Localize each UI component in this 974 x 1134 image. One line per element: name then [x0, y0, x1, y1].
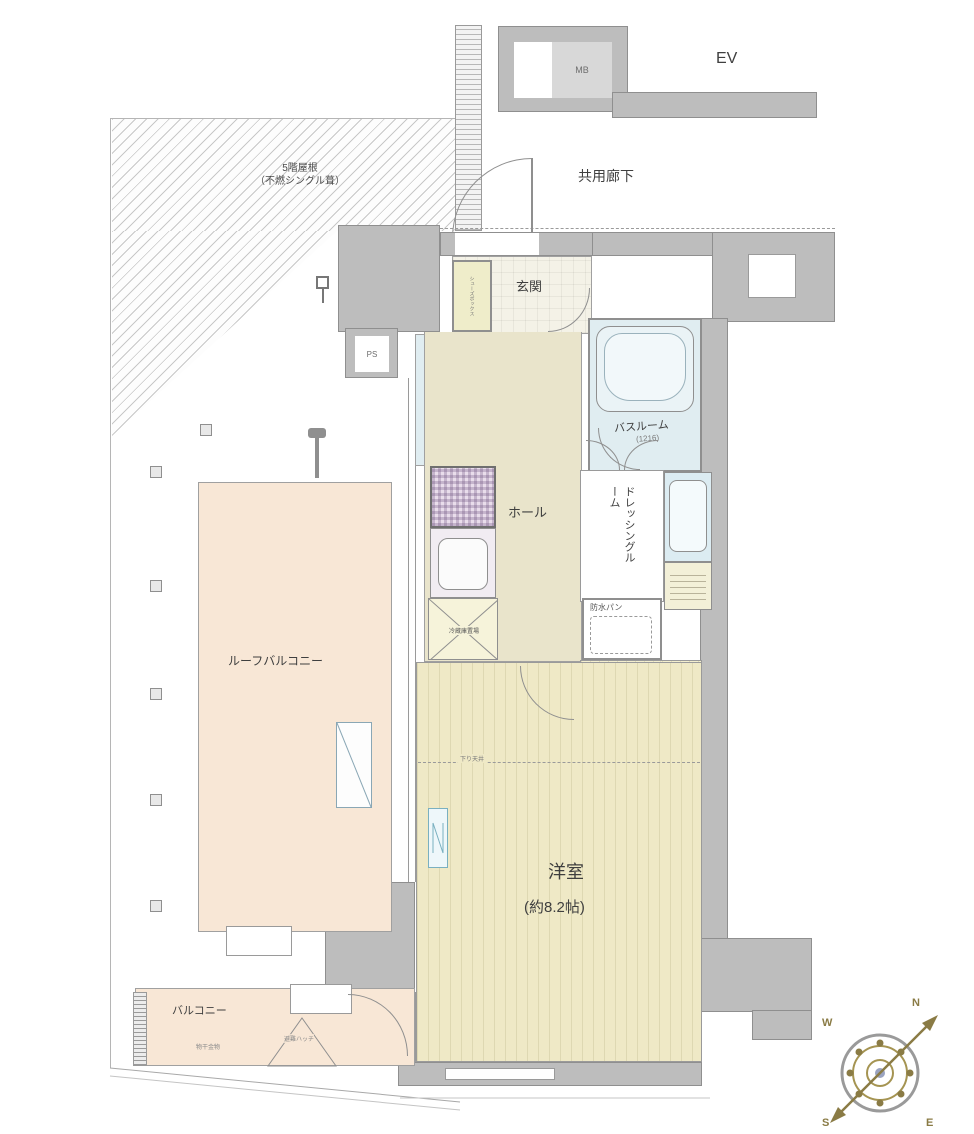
fridge-space: 冷蔵庫置場 — [428, 598, 498, 660]
compass-north-label: N — [912, 997, 920, 1009]
ps-label: PS — [367, 350, 378, 359]
laundry-hardware-label: 物干金物 — [196, 1042, 220, 1051]
wall-southeast-tab — [752, 1010, 812, 1040]
dressing-room-label: ドレッシングルーム — [596, 486, 636, 572]
wall-southeast-mass — [688, 938, 812, 1012]
roof-drain-icon — [316, 276, 329, 289]
bathtub-inner-icon — [604, 333, 686, 401]
floor-plan: 5階屋根（不燃シングル葺） MB EV 共用廊下 PS 玄関 シューズボックス — [0, 0, 974, 1134]
washbasin-bowl-icon — [669, 480, 707, 552]
evacuation-hatch-label: 避難ハッチ — [284, 1034, 314, 1043]
entrance-label: 玄関 — [516, 276, 542, 295]
roof-balcony — [198, 482, 392, 932]
compass-east-label: E — [926, 1117, 933, 1129]
wall-northeast-notch — [748, 254, 796, 298]
western-room-label: 洋室 — [548, 858, 584, 884]
roof-drain-stem — [322, 289, 324, 303]
railing-post-icon — [150, 688, 162, 700]
mb-box: MB — [552, 42, 612, 98]
mb-label: MB — [575, 65, 589, 75]
ev-label: EV — [716, 50, 737, 68]
washbasin-cabinet-lines — [670, 570, 706, 600]
kitchen-sink-bowl-icon — [438, 538, 488, 590]
railing-post-icon — [150, 580, 162, 592]
compass-south-label: S — [822, 1117, 829, 1129]
wall-north-door-gap — [455, 233, 539, 255]
balcony-divider-panel — [133, 992, 147, 1066]
ev-corridor-wall — [612, 92, 817, 118]
roof-balcony-bench — [226, 926, 292, 956]
skylight-diagonal — [336, 722, 372, 808]
railing-post-icon — [150, 900, 162, 912]
wall-south-window-gap — [445, 1068, 555, 1080]
roof-hatch-wedge — [112, 231, 337, 436]
shoe-box: シューズボックス — [452, 260, 492, 332]
railing-post-icon — [150, 794, 162, 806]
balcony-label: バルコニー — [172, 1002, 227, 1018]
western-room-size-label: (約8.2帖) — [524, 896, 585, 917]
wall-east — [700, 318, 728, 940]
railing-post-icon — [200, 424, 212, 436]
kitchen-stove-icon — [430, 466, 496, 528]
entrance-door-leaf — [531, 158, 533, 238]
balcony-storage-box — [290, 984, 352, 1014]
waterproof-pan-label: 防水パン — [590, 602, 622, 613]
site-boundary-left — [110, 118, 111, 1068]
fridge-space-label: 冷蔵庫置場 — [429, 599, 498, 660]
common-corridor-label: 共用廊下 — [578, 166, 634, 186]
wall-north-west-mass — [338, 225, 440, 332]
roof-label: 5階屋根（不燃シングル葺） — [215, 158, 385, 192]
vent-pipe-stem — [315, 438, 319, 478]
waterproof-pan-inner — [590, 616, 652, 654]
railing-post-icon — [150, 466, 162, 478]
compass-west-label: W — [822, 1017, 832, 1029]
shoe-box-label: シューズボックス — [469, 276, 476, 316]
hall-label: ホール — [508, 502, 547, 521]
compass: N W S E — [808, 995, 958, 1134]
roof-balcony-label: ルーフバルコニー — [228, 652, 323, 669]
compass-rose-icon — [808, 995, 958, 1134]
ps-box: PS — [355, 336, 389, 372]
west-window-glyph — [428, 808, 448, 868]
vent-pipe-icon — [308, 428, 326, 438]
lowered-ceiling-label: 下り天井 — [458, 754, 486, 763]
